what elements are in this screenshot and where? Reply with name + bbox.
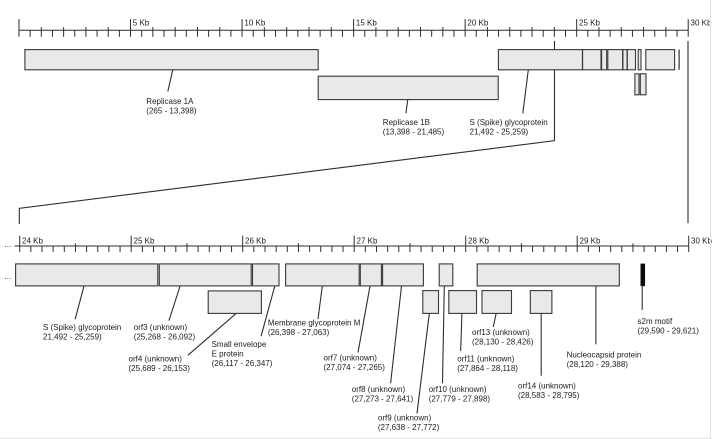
svg-text:(27,638 - 27,772): (27,638 - 27,772): [378, 423, 440, 432]
svg-text:Replicase 1B: Replicase 1B: [383, 118, 430, 127]
svg-text:orf7 (unknown): orf7 (unknown): [324, 353, 378, 362]
svg-text:21,492 - 25,259): 21,492 - 25,259): [43, 333, 102, 342]
svg-text:Membrane glycoprotein M: Membrane glycoprotein M: [268, 318, 361, 327]
svg-text:28 Kb: 28 Kb: [468, 237, 489, 246]
svg-text:10 Kb: 10 Kb: [244, 18, 265, 27]
svg-text:30 Kb: 30 Kb: [691, 18, 712, 27]
svg-text:Small envelope: Small envelope: [212, 340, 267, 349]
svg-text:25 Kb: 25 Kb: [579, 18, 600, 27]
svg-text:S (Spike) glycoprotein: S (Spike) glycoprotein: [43, 323, 121, 332]
svg-text:(29,590 - 29,621): (29,590 - 29,621): [638, 327, 700, 336]
svg-text:(27,864 - 28,118): (27,864 - 28,118): [457, 364, 518, 373]
svg-text:Nucleocapsid protein: Nucleocapsid protein: [567, 350, 642, 359]
svg-text:orf11 (unknown): orf11 (unknown): [457, 355, 515, 364]
svg-text:(27,074 - 27,265): (27,074 - 27,265): [324, 363, 386, 372]
svg-text:27 Kb: 27 Kb: [357, 237, 378, 246]
svg-text:S (Spike) glycoprotein: S (Spike) glycoprotein: [470, 118, 548, 127]
svg-text:(28,583 - 28,795): (28,583 - 28,795): [518, 391, 580, 400]
svg-text:orf13 (unknown): orf13 (unknown): [472, 328, 530, 337]
svg-text:5 Kb: 5 Kb: [133, 18, 150, 27]
svg-text:26 Kb: 26 Kb: [245, 237, 266, 246]
svg-text:15 Kb: 15 Kb: [356, 18, 377, 27]
svg-text:(25,268 - 26,092): (25,268 - 26,092): [134, 333, 196, 342]
svg-text:orf4 (unknown): orf4 (unknown): [129, 355, 183, 364]
svg-text:(28,130 - 28,426): (28,130 - 28,426): [472, 338, 534, 347]
svg-text:(13,398 - 21,485): (13,398 - 21,485): [383, 128, 445, 137]
svg-text:24 Kb: 24 Kb: [22, 237, 43, 246]
svg-text:(26,398 - 27,063): (26,398 - 27,063): [268, 328, 330, 337]
svg-text:30 Kb: 30 Kb: [691, 237, 712, 246]
svg-text:21,492 - 25,259): 21,492 - 25,259): [470, 128, 529, 137]
svg-text:25 Kb: 25 Kb: [134, 237, 155, 246]
svg-text:orf9 (unknown): orf9 (unknown): [378, 414, 432, 423]
svg-text:E protein: E protein: [212, 350, 244, 359]
svg-text:orf14 (unknown): orf14 (unknown): [518, 382, 576, 391]
svg-text:(25,689 - 26,153): (25,689 - 26,153): [129, 364, 191, 373]
svg-text:20 Kb: 20 Kb: [467, 18, 488, 27]
svg-text:orf3 (unknown): orf3 (unknown): [134, 323, 188, 332]
svg-text:s2m motif: s2m motif: [638, 317, 673, 326]
svg-text:(28,120 - 29,388): (28,120 - 29,388): [567, 360, 629, 369]
svg-text:...: ...: [5, 240, 12, 249]
svg-text:(27,779 - 27,898): (27,779 - 27,898): [429, 395, 491, 404]
svg-text:orf8 (unknown): orf8 (unknown): [352, 385, 406, 394]
svg-text:(27,273 - 27,641): (27,273 - 27,641): [352, 395, 414, 404]
svg-text:(265 - 13,398): (265 - 13,398): [146, 107, 197, 116]
svg-text:(26,117 - 26,347): (26,117 - 26,347): [212, 359, 273, 368]
svg-text:Replicase 1A: Replicase 1A: [146, 97, 194, 106]
svg-text:orf10 (unknown): orf10 (unknown): [429, 385, 487, 394]
svg-text:29 Kb: 29 Kb: [580, 237, 601, 246]
svg-text:...: ...: [5, 272, 12, 281]
